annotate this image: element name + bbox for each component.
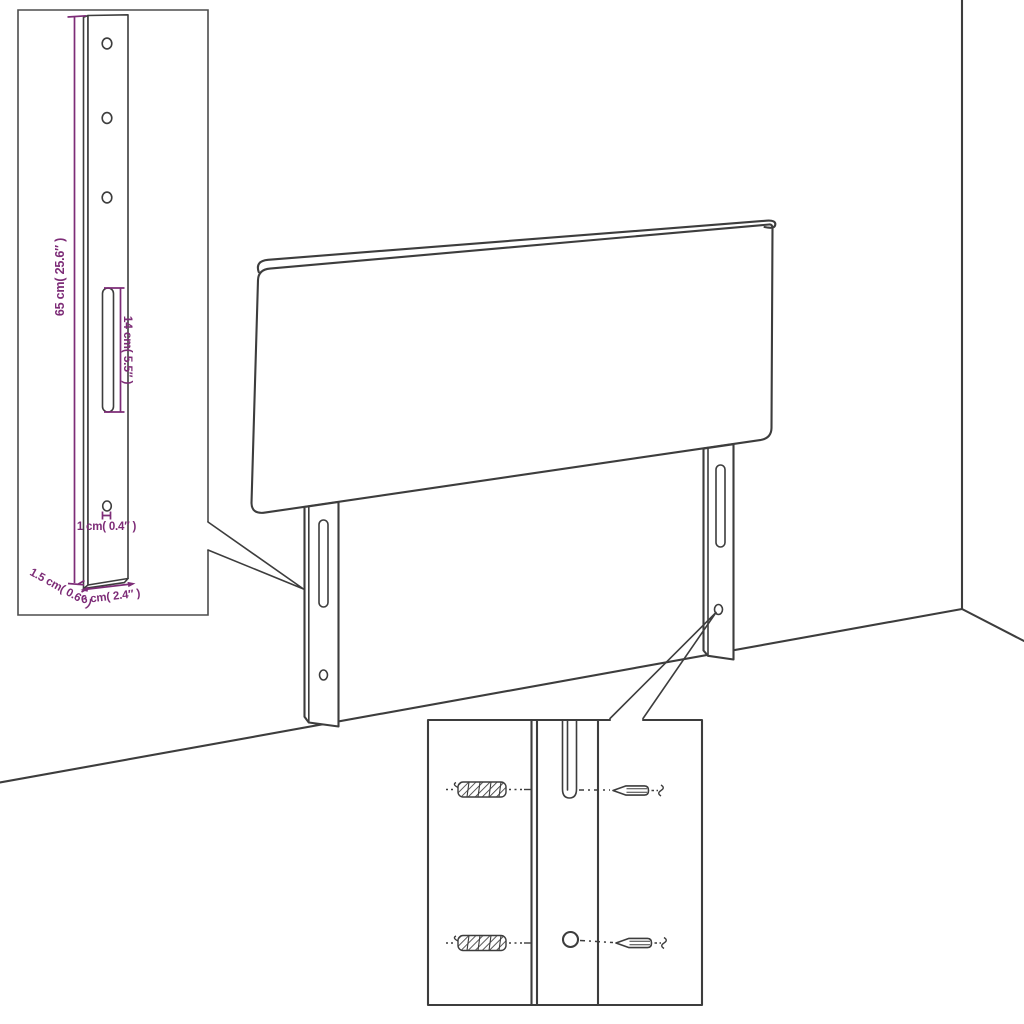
left-mounting-leg <box>305 502 339 727</box>
dimension-slot-label: 14 cm( 5.5″ ) <box>121 316 135 385</box>
floor-line-right <box>962 609 1024 641</box>
detail-leader-lines <box>208 522 304 589</box>
left-leg-body <box>305 502 339 727</box>
bracket-front-face <box>88 15 128 585</box>
inset-leader-lines <box>610 613 716 719</box>
dimension-hole-label: 1 cm( 0.4″ ) <box>77 521 137 533</box>
headboard-front-face <box>252 224 773 512</box>
right-mounting-leg <box>704 444 734 659</box>
dimension-height-label: 65 cm( 25.6″ ) <box>53 238 67 316</box>
diagram-canvas: 65 cm( 25.6″ ) 14 cm( 5.5″ ) 1 cm( 0.4″ … <box>0 0 1024 1024</box>
headboard-panel <box>252 221 776 513</box>
inset-box-background <box>428 720 702 1005</box>
hardware-inset <box>428 613 716 1006</box>
headboard-assembly-diagram: 65 cm( 25.6″ ) 14 cm( 5.5″ ) 1 cm( 0.4″ … <box>0 0 1024 1024</box>
